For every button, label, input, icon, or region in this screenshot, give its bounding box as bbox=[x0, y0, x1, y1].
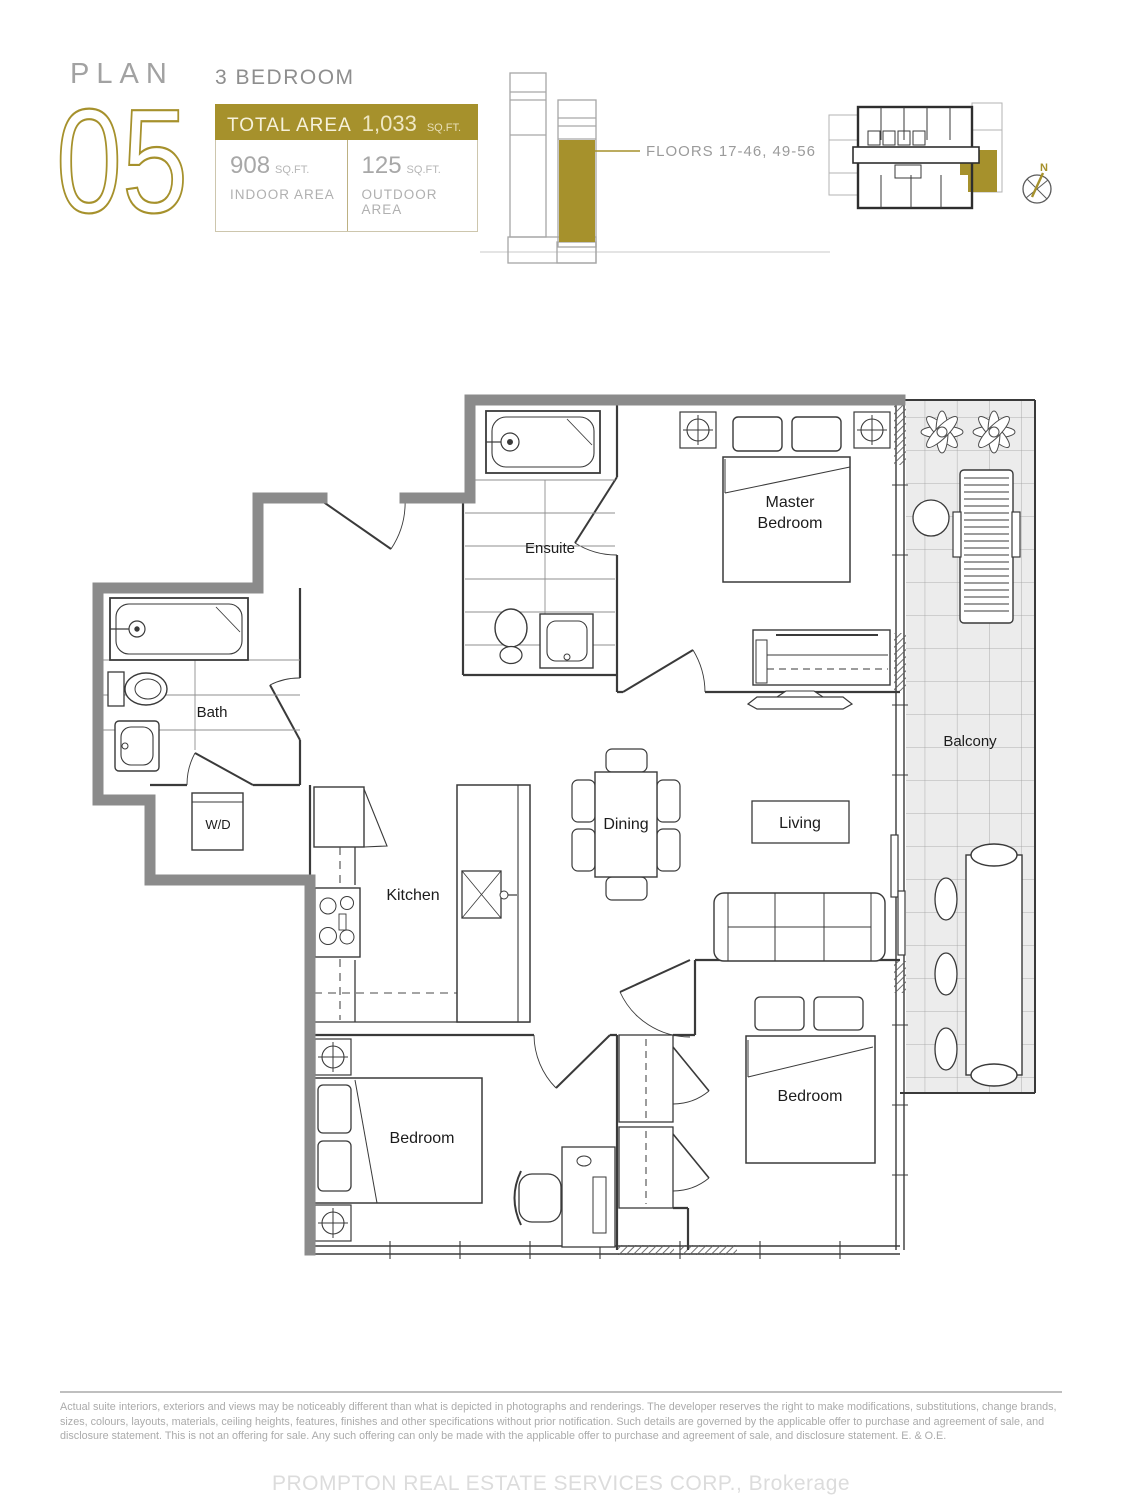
outdoor-area-label: OUTDOOR AREA bbox=[362, 187, 478, 217]
master-bedroom-room: Master Bedroom bbox=[680, 412, 890, 709]
sink-icon bbox=[115, 721, 159, 771]
room-label-balcony: Balcony bbox=[943, 733, 997, 750]
area-summary-table: TOTAL AREA 1,033 SQ.FT. 908SQ.FT. INDOOR… bbox=[215, 104, 478, 232]
toilet-icon bbox=[108, 672, 167, 706]
balcony-sliding-door bbox=[891, 835, 905, 955]
outdoor-area-value: 125 bbox=[362, 152, 402, 179]
sink-icon bbox=[540, 614, 593, 668]
indoor-area-cell: 908SQ.FT. INDOOR AREA bbox=[216, 140, 347, 231]
room-label-bedroom-left: Bedroom bbox=[390, 1130, 455, 1147]
total-area-unit: SQ.FT. bbox=[427, 122, 461, 134]
room-label-bedroom-right: Bedroom bbox=[778, 1088, 843, 1105]
left-tower-outline bbox=[510, 73, 546, 237]
ceiling-light-icon bbox=[680, 412, 716, 448]
outdoor-area-unit: SQ.FT. bbox=[407, 164, 441, 176]
fridge-icon bbox=[314, 787, 387, 847]
brokerage-watermark: PROMPTON REAL ESTATE SERVICES CORP., Bro… bbox=[0, 1472, 1122, 1496]
laundry-door bbox=[187, 753, 253, 785]
disclaimer-text: Actual suite interiors, exteriors and vi… bbox=[60, 1400, 1062, 1444]
ensuite-room: Ensuite bbox=[465, 411, 615, 668]
sofa-icon bbox=[714, 893, 885, 961]
master-bedroom-door bbox=[623, 650, 705, 692]
keyplan-corridor bbox=[853, 147, 979, 163]
room-label-kitchen: Kitchen bbox=[386, 887, 439, 904]
bathtub-icon bbox=[110, 598, 248, 660]
master-closet-icon bbox=[753, 630, 890, 685]
indoor-area-label: INDOOR AREA bbox=[230, 187, 347, 202]
room-label-master-1: Master bbox=[766, 494, 816, 511]
room-label-dining: Dining bbox=[603, 816, 648, 833]
bedroom-right-room: Bedroom bbox=[746, 997, 875, 1163]
plan-number-outline: 05 bbox=[54, 100, 214, 230]
ceiling-light-icon bbox=[315, 1205, 351, 1241]
entry-door bbox=[322, 498, 405, 549]
building-key-plan: N bbox=[815, 85, 1070, 220]
bedroom-left-room: Bedroom bbox=[313, 1039, 615, 1247]
room-label-wd: W/D bbox=[205, 817, 230, 832]
compass-icon: N bbox=[1023, 162, 1051, 203]
bedroom-left-door bbox=[534, 1035, 610, 1088]
floor-plan-drawing: Balcony bbox=[88, 385, 1048, 1275]
balcony-area: Balcony bbox=[900, 400, 1035, 1093]
desk-chair-icon bbox=[515, 1171, 562, 1225]
room-label-ensuite: Ensuite bbox=[525, 540, 575, 557]
indoor-area-unit: SQ.FT. bbox=[275, 164, 309, 176]
north-label: N bbox=[1040, 162, 1048, 174]
toilet-icon bbox=[495, 609, 527, 664]
dining-area: Dining bbox=[572, 749, 680, 900]
chaise-lounge bbox=[953, 470, 1020, 623]
bedroom-right-door bbox=[620, 960, 690, 1037]
outdoor-area-cell: 125SQ.FT. OUTDOOR AREA bbox=[347, 140, 478, 231]
closet-doors bbox=[673, 1047, 709, 1191]
desk-icon bbox=[562, 1147, 615, 1247]
total-area-banner: TOTAL AREA 1,033 SQ.FT. bbox=[215, 104, 478, 140]
bath-room: Bath W/D bbox=[98, 598, 300, 850]
kitchen-room: Kitchen bbox=[310, 785, 530, 1022]
plant-icon bbox=[973, 411, 1015, 453]
tv-icon bbox=[748, 691, 852, 709]
total-area-label: TOTAL AREA bbox=[227, 115, 352, 137]
balcony-dining-set bbox=[935, 844, 1022, 1086]
plan-word-label: PLAN bbox=[70, 58, 174, 91]
bath-door bbox=[270, 678, 300, 740]
highlighted-floors-band bbox=[559, 140, 595, 242]
building-elevation-diagram bbox=[480, 58, 830, 273]
room-label-bath: Bath bbox=[197, 704, 228, 721]
room-label-master-2: Bedroom bbox=[758, 515, 823, 532]
balcony-side-table bbox=[913, 500, 949, 536]
ensuite-door bbox=[575, 477, 617, 555]
unit-type-label: 3 BEDROOM bbox=[215, 66, 355, 90]
closets bbox=[619, 1035, 673, 1208]
living-area: Living bbox=[714, 801, 885, 961]
indoor-area-value: 908 bbox=[230, 152, 270, 179]
footer-divider bbox=[60, 1391, 1062, 1393]
room-label-living: Living bbox=[779, 815, 821, 832]
ceiling-light-icon bbox=[315, 1039, 351, 1075]
total-area-value: 1,033 bbox=[362, 111, 417, 137]
plan-number-text: 05 bbox=[56, 100, 188, 230]
ceiling-light-icon bbox=[854, 412, 890, 448]
floors-range-label: FLOORS 17-46, 49-56 bbox=[646, 143, 816, 160]
bathtub-icon bbox=[486, 411, 600, 473]
bed-icon bbox=[746, 997, 875, 1163]
plant-icon bbox=[921, 411, 963, 453]
stove-icon bbox=[315, 888, 360, 957]
